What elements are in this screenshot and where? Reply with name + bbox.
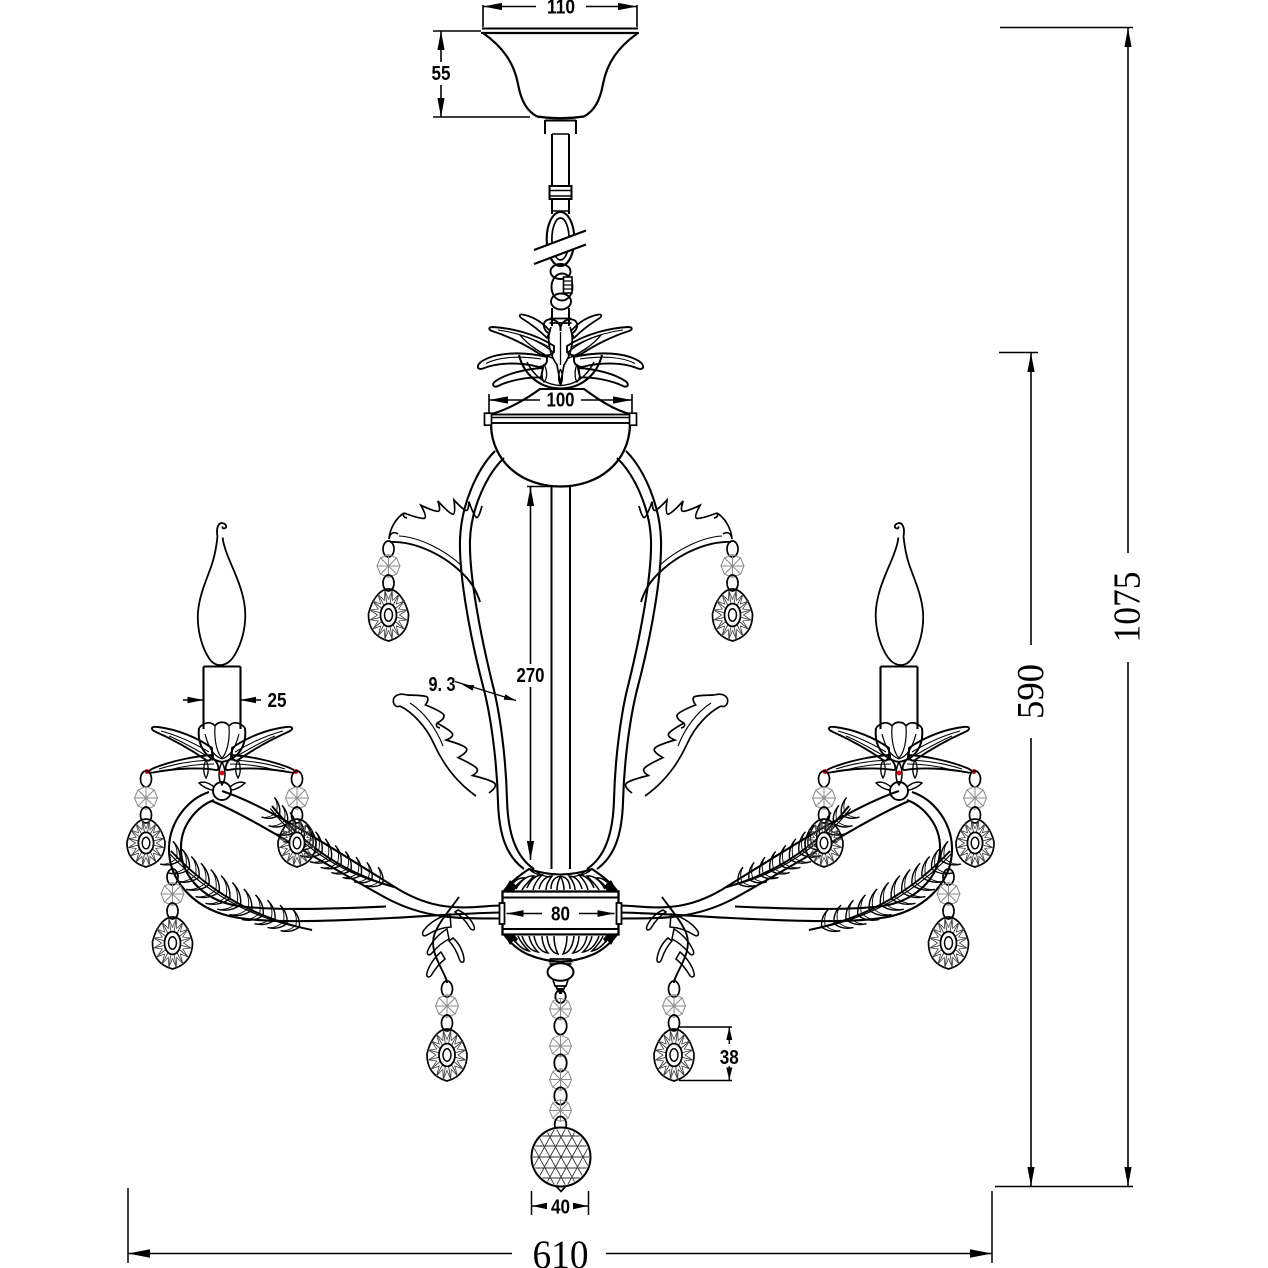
svg-text:40: 40 [551, 1197, 570, 1219]
svg-text:100: 100 [547, 390, 575, 412]
svg-text:610: 610 [533, 1232, 589, 1268]
svg-text:38: 38 [720, 1047, 739, 1069]
svg-text:1075: 1075 [1107, 572, 1149, 643]
svg-text:80: 80 [551, 904, 570, 926]
svg-text:55: 55 [432, 63, 451, 85]
svg-text:9. 3: 9. 3 [429, 674, 456, 696]
svg-text:110: 110 [547, 0, 575, 19]
svg-text:25: 25 [268, 690, 287, 712]
svg-text:270: 270 [517, 665, 545, 687]
svg-text:590: 590 [1010, 664, 1052, 719]
